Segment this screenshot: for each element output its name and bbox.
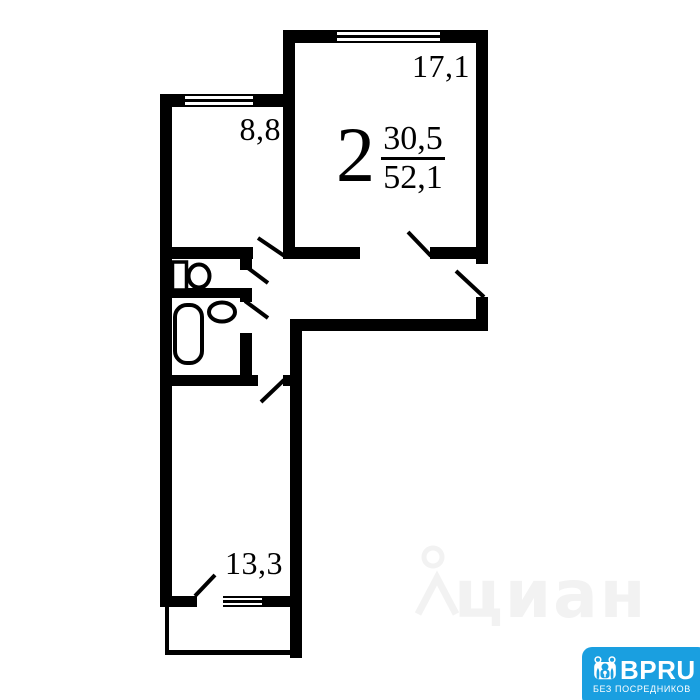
wall bbox=[160, 288, 243, 298]
living-area: 30,5 bbox=[381, 124, 445, 160]
wall bbox=[430, 247, 477, 259]
bpru-tagline-text: БЕЗ ПОСРЕДНИКОВ bbox=[593, 684, 691, 694]
wall bbox=[253, 94, 295, 107]
balcony-rail bbox=[165, 607, 169, 653]
window-glass-line bbox=[337, 35, 440, 38]
toilet-tank-icon bbox=[173, 262, 187, 290]
bathtub-icon bbox=[175, 305, 202, 363]
wall bbox=[160, 94, 172, 607]
wall bbox=[476, 30, 488, 264]
wall bbox=[240, 333, 252, 376]
wall bbox=[290, 319, 488, 331]
door-swing-entrance bbox=[456, 271, 484, 297]
wall bbox=[283, 30, 338, 43]
wall bbox=[283, 30, 295, 258]
bpru-brand-text: BPRU bbox=[620, 655, 696, 686]
window-glass-line bbox=[185, 99, 253, 102]
watermark-roof-icon bbox=[418, 578, 456, 614]
apartment-summary: 2 30,5 52,1 bbox=[336, 120, 445, 193]
toilet-bowl-icon bbox=[189, 265, 210, 288]
rooms-count: 2 bbox=[336, 120, 375, 190]
bpru-logo-icon bbox=[592, 656, 618, 682]
door-swing-room-bottom bbox=[261, 380, 284, 402]
balcony-rail bbox=[165, 650, 302, 655]
bpru-badge[interactable]: BPRU БЕЗ ПОСРЕДНИКОВ bbox=[582, 647, 700, 700]
wall bbox=[290, 319, 302, 658]
total-area: 52,1 bbox=[381, 160, 445, 193]
watermark-text: циан bbox=[454, 556, 647, 633]
window-symbol bbox=[337, 30, 440, 43]
area-label-room-small: 8,8 bbox=[211, 111, 281, 148]
wall bbox=[240, 258, 252, 270]
wall bbox=[283, 375, 290, 386]
door-swing-balcony bbox=[195, 575, 215, 596]
window-glass-line bbox=[223, 600, 262, 603]
wall bbox=[262, 596, 302, 607]
watermark-head-icon bbox=[424, 548, 442, 566]
door-swing-room-large bbox=[408, 232, 431, 256]
window-symbol bbox=[223, 596, 262, 607]
wall bbox=[160, 375, 258, 386]
area-fraction: 30,5 52,1 bbox=[381, 124, 445, 193]
window-symbol bbox=[185, 94, 253, 107]
door-swing-bathroom bbox=[245, 301, 268, 318]
area-label-room-large: 17,1 bbox=[400, 48, 470, 85]
area-label-room-bottom: 13,3 bbox=[213, 545, 283, 582]
wall bbox=[283, 247, 360, 259]
door-swing-room-small bbox=[258, 238, 286, 257]
sink-icon bbox=[209, 303, 235, 322]
floor-plan-canvas: 17,1 8,8 13,3 2 30,5 52,1 циан BPRU БЕЗ … bbox=[0, 0, 700, 700]
wall bbox=[160, 596, 197, 607]
wall bbox=[240, 288, 252, 302]
